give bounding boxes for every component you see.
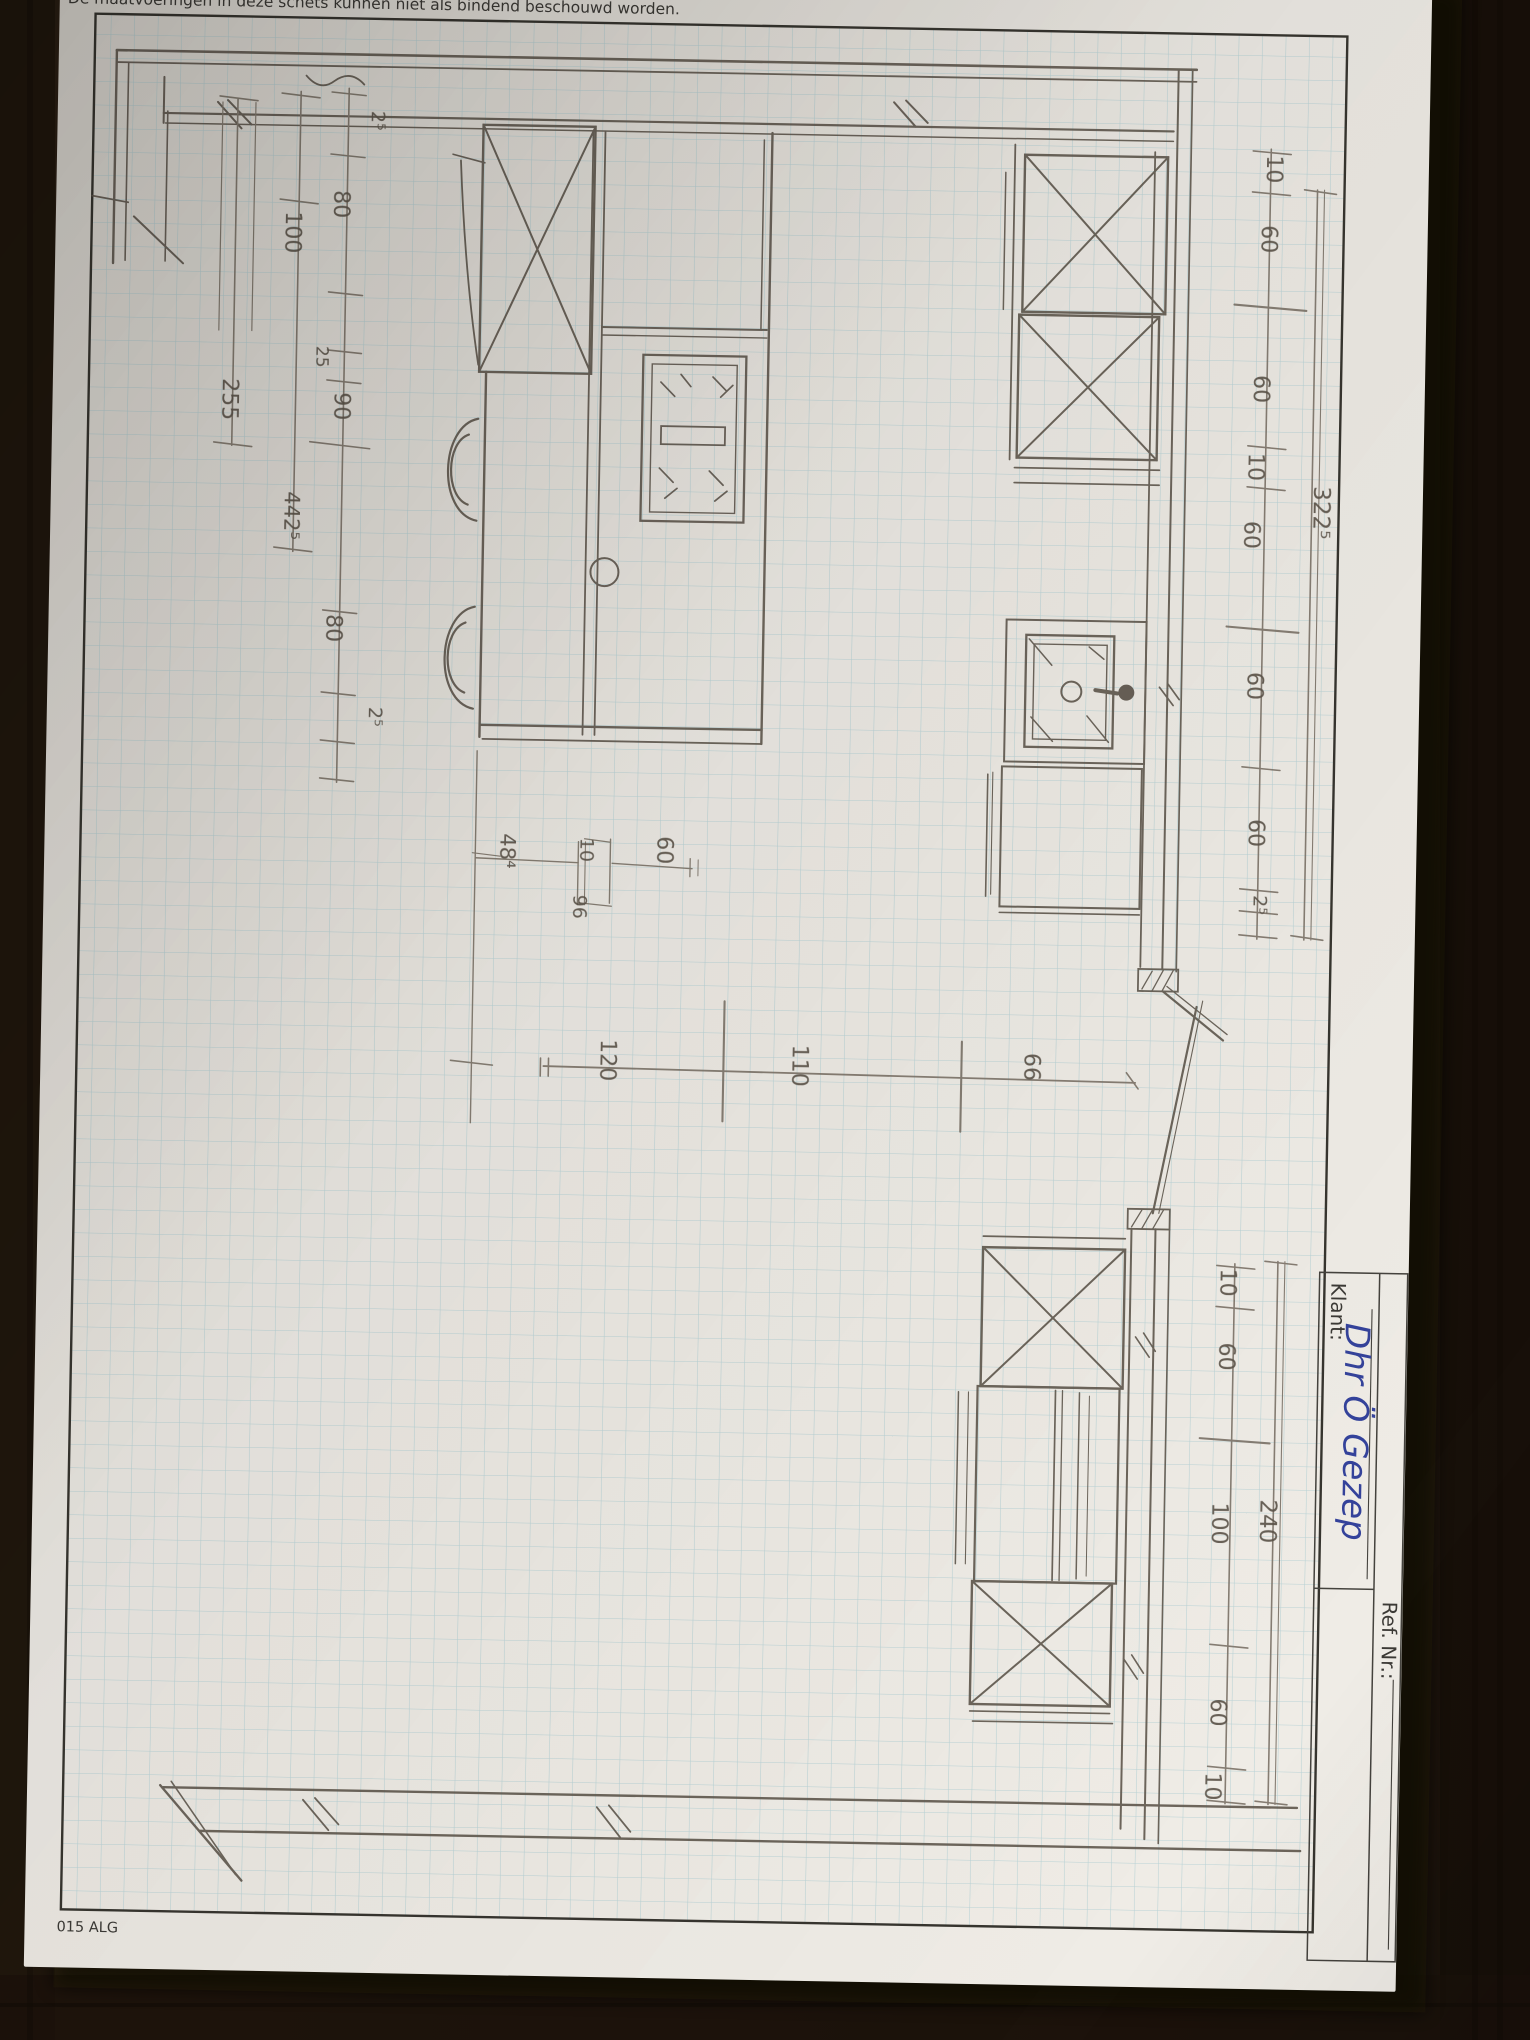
photo-of-kitchen-sketch: De maatvoeringen in deze schets kunnen n… [0, 0, 1530, 2040]
scene: De maatvoeringen in deze schets kunnen n… [0, 0, 1530, 2040]
lighting-overlay [0, 0, 1530, 2040]
